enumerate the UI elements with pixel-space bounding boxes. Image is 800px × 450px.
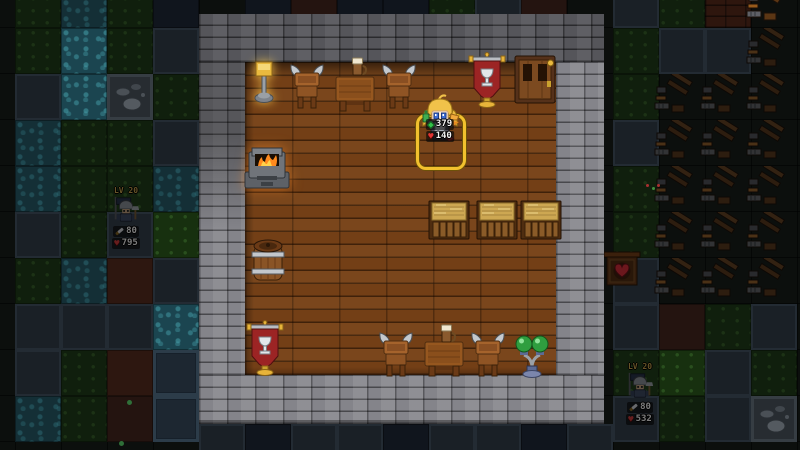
character-layer: 379 ♥140 xyxy=(0,0,800,450)
heart-red-icon: ♥ xyxy=(428,133,433,141)
player-stat-value: 379 xyxy=(436,119,452,130)
player-character[interactable]: 379 ♥140 xyxy=(414,92,466,168)
gem-green-icon xyxy=(427,120,435,128)
player-health-value: 140 xyxy=(436,131,452,142)
game-viewport: LV 20 80 ♥795 LV 20 80 ♥ xyxy=(0,0,800,450)
